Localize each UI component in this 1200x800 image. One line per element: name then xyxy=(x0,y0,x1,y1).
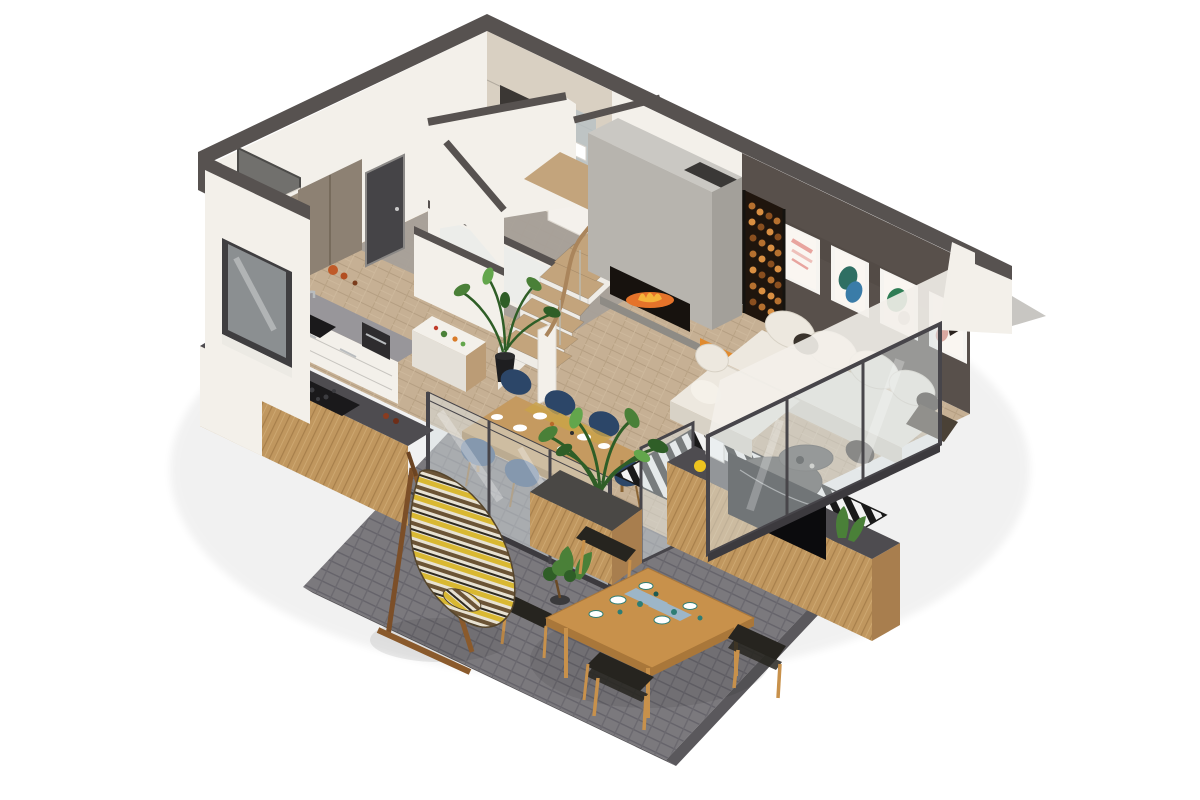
yellow-lamp xyxy=(694,460,706,472)
right-corner-wedge xyxy=(1012,296,1046,326)
orange-teapot-small xyxy=(341,273,348,280)
floorplan-svg xyxy=(0,0,1200,800)
door-handle xyxy=(395,207,399,211)
spice-jar xyxy=(353,281,358,286)
tv-wall-end xyxy=(872,543,900,641)
fireplace-side xyxy=(712,177,742,330)
floorplan-3d-render xyxy=(0,0,1200,800)
orange-teapot xyxy=(328,265,338,275)
